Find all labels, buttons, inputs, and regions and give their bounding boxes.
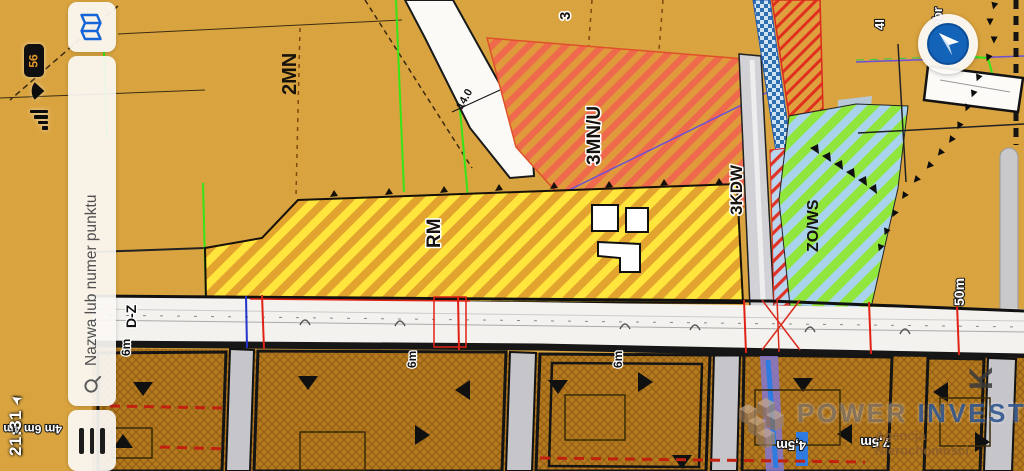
clock-text: 21:31 (6, 410, 26, 456)
menu-button[interactable] (68, 410, 116, 471)
map-label-2mn: 2MN (279, 53, 301, 95)
map-label-6m: 6m (611, 351, 625, 368)
compass-icon (925, 21, 971, 67)
map-label-3kdw: 3KDW (727, 164, 746, 215)
screen: { "status": { "time": "21:31", "battery_… (0, 0, 1024, 471)
map-label-rm: RM (424, 218, 445, 248)
plots-area (92, 348, 1024, 471)
status-bar-time: 21:31 ➤ (6, 370, 26, 456)
map-label-45m: 4,5m (776, 438, 806, 453)
map-icon (79, 12, 105, 42)
zoning-map[interactable]: 2MN3MN/URM3KDWZO/WS3D-Z6m6m6m50m4IobrK14… (0, 0, 1024, 471)
road-dz (92, 295, 1024, 357)
map-label-dz: D-Z (123, 304, 139, 328)
map-layers-button[interactable] (68, 2, 116, 52)
wifi-icon (26, 80, 48, 102)
map-label-4i: 4I (872, 19, 887, 30)
map-label-6m: 6m (119, 339, 133, 356)
map-label-zows: ZO/WS (805, 199, 822, 252)
map-label-50m: 50m (951, 278, 967, 306)
signal-bars-icon (26, 108, 48, 130)
battery-icon: 56 (24, 44, 44, 77)
compass-button[interactable] (918, 14, 978, 74)
map-label-3mnu: 3MN/U (584, 106, 605, 165)
search-placeholder: Nazwa lub numer punktu (83, 195, 101, 366)
search-bar[interactable]: Nazwa lub numer punktu (68, 56, 116, 406)
menu-icon (79, 428, 84, 454)
battery-percent: 56 (27, 54, 41, 67)
map-label-6m: 6m (405, 351, 419, 368)
map-label-k: K (963, 367, 999, 390)
location-arrow-icon: ➤ (8, 391, 24, 408)
map-label-3: 3 (557, 12, 574, 20)
map-label-75m: 7,5m (860, 435, 890, 450)
search-icon (83, 375, 102, 394)
